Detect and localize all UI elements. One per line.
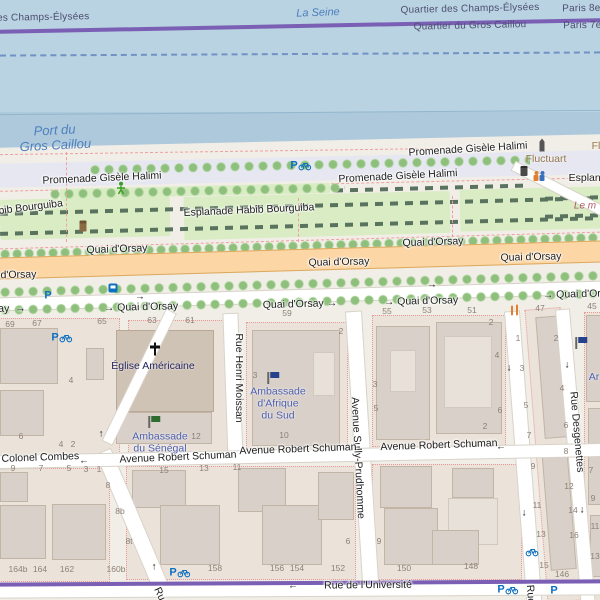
map-canvas[interactable]: Quartier des Champs-ÉlyséesLa SeineQuart…	[0, 0, 600, 600]
oneway-arrow: ←	[288, 580, 298, 591]
house-number: 13	[590, 552, 599, 562]
street-label: Rue Henri Moissan	[232, 333, 244, 422]
house-number: 2	[71, 440, 76, 450]
house-number: 8t	[125, 537, 132, 547]
house-number: 3	[373, 380, 378, 390]
building	[52, 504, 106, 560]
house-number: 7	[589, 466, 594, 476]
oneway-arrow: ↓	[522, 507, 527, 518]
parking-bicycle-icon: P	[497, 585, 518, 596]
street-label: Quai d'Orsay	[308, 256, 369, 269]
house-number: 6	[19, 432, 24, 442]
house-number: 152	[331, 564, 345, 574]
house-number: 9	[377, 537, 382, 547]
building	[384, 508, 438, 565]
parking-bicycle-icon: P	[290, 161, 311, 172]
building	[0, 328, 58, 384]
house-number: 11	[591, 522, 600, 532]
building	[586, 315, 600, 402]
oneway-arrow: ↑	[99, 428, 104, 439]
parking-bicycle-icon: P	[51, 333, 72, 344]
house-number: 7	[527, 431, 532, 441]
bus-stop-icon	[109, 284, 118, 293]
house-number: 12	[564, 482, 573, 492]
building	[452, 468, 494, 498]
house-number: 14	[568, 506, 577, 516]
street-label: Esplanade Habib Bourguiba	[569, 173, 600, 185]
house-number: 1	[97, 465, 102, 475]
house-number: 3	[253, 371, 258, 381]
house-number: 15	[539, 561, 548, 571]
courtyard	[313, 352, 335, 396]
embassy-label: Ambassade d'Afrique du Sud	[250, 386, 305, 421]
oneway-arrow: →	[427, 279, 437, 290]
house-number: 6	[498, 406, 503, 416]
street-label: Quai d'Orsay	[402, 236, 463, 250]
house-number: 146	[555, 570, 569, 580]
river-label: La Seine	[296, 6, 340, 20]
house-number: 162	[60, 565, 74, 575]
house-number: 16	[569, 531, 578, 541]
house-number: 10	[279, 431, 288, 441]
house-number: 65	[97, 317, 106, 327]
house-number: 11	[533, 501, 542, 511]
house-number: 164	[33, 565, 47, 575]
house-number: 6	[346, 537, 351, 547]
monument-icon	[80, 221, 87, 232]
church-label: Église Américaine	[111, 361, 194, 373]
house-number: 3	[520, 364, 525, 374]
parking-icon: P	[550, 586, 557, 597]
street-label: Quai d'Orsay	[86, 243, 147, 257]
house-number: 2	[339, 327, 344, 337]
oneway-arrow: ↓	[507, 362, 512, 373]
street-label: → Quai d'Orsay	[543, 288, 600, 302]
house-number: 63	[147, 316, 156, 326]
house-number: 51	[467, 306, 476, 316]
memorial-label: Le m	[574, 200, 596, 211]
house-number: 148	[464, 562, 478, 572]
poi-label: Fluctuart	[526, 154, 567, 166]
parking-bicycle-icon: P	[169, 568, 190, 579]
house-number: 11	[233, 463, 242, 473]
port-label: Port du Gros Caillou	[19, 122, 92, 155]
house-number: 8	[106, 481, 111, 491]
embassy-flag-icon	[267, 372, 279, 384]
house-number: 154	[290, 564, 304, 574]
courtyard	[444, 336, 492, 408]
house-number: 5	[374, 404, 379, 414]
building	[262, 505, 322, 565]
house-number: 53	[422, 306, 431, 316]
house-number: 4	[560, 384, 565, 394]
house-number: 69	[5, 320, 14, 330]
house-number: 2	[489, 318, 494, 328]
house-number: 4	[495, 351, 500, 361]
house-number: 160b	[107, 565, 126, 575]
house-number: 156	[270, 564, 284, 574]
house-number: 15	[159, 466, 168, 476]
waste-basket-icon	[521, 166, 528, 176]
house-number: 8b	[115, 507, 124, 517]
house-number: 47	[535, 304, 544, 314]
embassy-flag-icon	[148, 416, 160, 428]
building	[380, 466, 432, 508]
house-number: 13	[536, 530, 545, 540]
house-number: 5	[524, 401, 529, 411]
house-number: 9	[531, 462, 536, 472]
street-label: → Quai d'Orsay	[384, 295, 459, 309]
house-number: 55	[382, 307, 391, 317]
oneway-arrow: ←	[496, 441, 506, 452]
poi-label: Fluctuart	[592, 141, 600, 153]
oneway-arrow: ↓	[580, 504, 585, 515]
street-label: Quai d'Orsay →	[263, 298, 338, 312]
district-label: Paris 8e Arrondissement	[562, 1, 600, 14]
house-number: 150	[397, 564, 411, 574]
church-cross-icon	[149, 343, 161, 356]
house-number: 3	[84, 465, 89, 475]
house-number: 6	[564, 421, 569, 431]
building	[86, 348, 104, 380]
monument-icon	[540, 139, 545, 152]
house-number: 2	[554, 334, 559, 344]
house-number: 59	[282, 309, 291, 319]
house-number: 7	[39, 464, 44, 474]
house-number: 4	[69, 376, 74, 386]
house-number: 5	[67, 464, 72, 474]
building	[0, 390, 44, 436]
building	[0, 472, 28, 502]
embassy-label: Ambassade du Sénégal	[132, 431, 187, 455]
artwork-figures-icon	[534, 171, 545, 181]
street-label: Quai d'Orsay	[0, 269, 37, 282]
embassy-label: Ar	[589, 372, 600, 384]
bicycle-parking-icon	[526, 548, 539, 557]
building	[0, 505, 46, 559]
street-label: Rue de l'Université	[324, 580, 412, 593]
courtyard	[390, 350, 416, 392]
house-number: 13	[199, 464, 208, 474]
parking-icon: P	[44, 291, 51, 302]
oneway-arrow: →	[135, 291, 145, 302]
street-label: Quai d'Orsay →	[0, 303, 26, 316]
footpath	[66, 152, 67, 242]
street-label: Quai d'Orsay	[500, 251, 561, 264]
house-number: 4	[59, 440, 64, 450]
pedestrian-icon	[116, 182, 127, 195]
building	[318, 472, 354, 520]
house-number: 67	[32, 319, 41, 329]
oneway-arrow: ↑	[152, 561, 157, 572]
building	[588, 408, 600, 505]
building	[432, 530, 479, 565]
house-number: 158	[208, 564, 222, 574]
street-label: → Quai d'Orsay	[104, 301, 179, 315]
house-number: 8	[564, 447, 569, 457]
oneway-arrow: ↓	[565, 359, 570, 370]
house-number: 164b	[9, 565, 28, 575]
embassy-flag-icon	[575, 337, 587, 349]
house-number: 2	[483, 422, 488, 432]
restaurant-icon	[511, 305, 519, 316]
house-number: 45	[587, 302, 596, 312]
house-number: 61	[185, 316, 194, 326]
building	[160, 505, 220, 565]
district-label: Paris 7e Arrondissement	[563, 18, 600, 31]
house-number: 9	[591, 494, 596, 504]
house-number: 12	[191, 432, 200, 442]
house-number: 1	[516, 334, 521, 344]
house-number: 9	[11, 464, 16, 474]
